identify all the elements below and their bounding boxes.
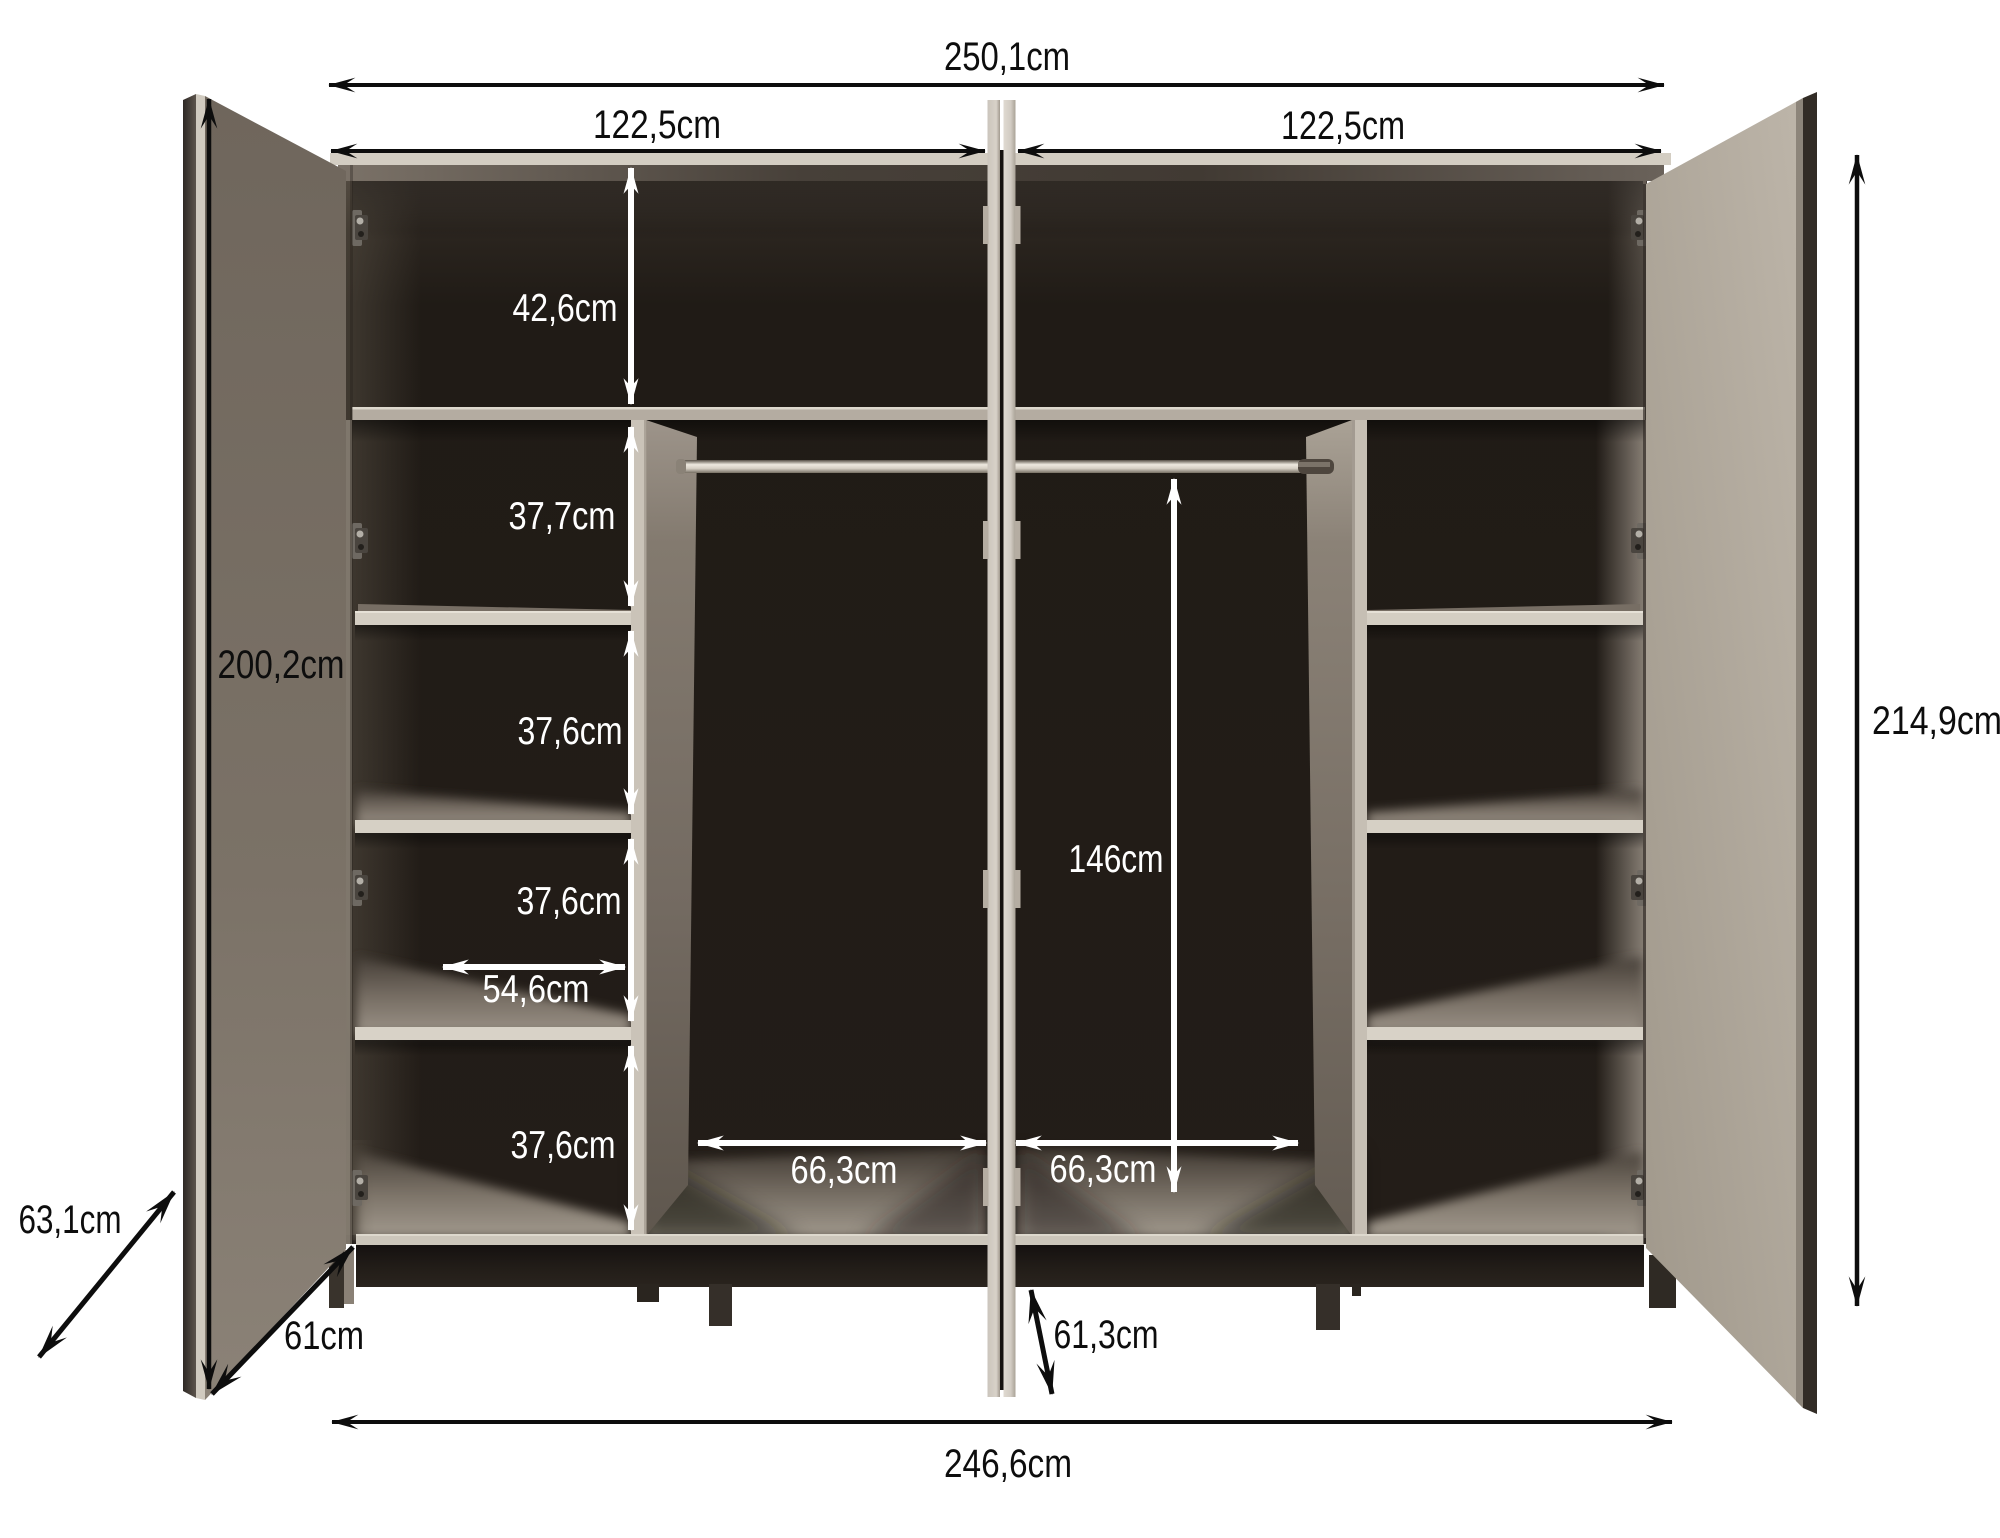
svg-text:146cm: 146cm [1069, 838, 1164, 881]
svg-text:37,6cm: 37,6cm [518, 710, 623, 753]
svg-text:61cm: 61cm [284, 1314, 364, 1358]
svg-text:42,6cm: 42,6cm [513, 287, 618, 330]
svg-text:37,6cm: 37,6cm [517, 880, 622, 923]
svg-text:122,5cm: 122,5cm [593, 103, 721, 147]
svg-text:250,1cm: 250,1cm [944, 35, 1070, 79]
svg-text:37,6cm: 37,6cm [511, 1124, 616, 1167]
svg-text:122,5cm: 122,5cm [1281, 104, 1405, 148]
svg-text:66,3cm: 66,3cm [791, 1149, 898, 1192]
svg-text:214,9cm: 214,9cm [1872, 699, 2000, 743]
svg-text:63,1cm: 63,1cm [19, 1198, 122, 1242]
svg-text:37,7cm: 37,7cm [509, 495, 616, 538]
svg-text:66,3cm: 66,3cm [1050, 1148, 1157, 1191]
svg-text:61,3cm: 61,3cm [1054, 1313, 1159, 1357]
svg-text:246,6cm: 246,6cm [944, 1442, 1072, 1486]
svg-text:54,6cm: 54,6cm [483, 968, 590, 1011]
svg-text:200,2cm: 200,2cm [218, 643, 345, 687]
